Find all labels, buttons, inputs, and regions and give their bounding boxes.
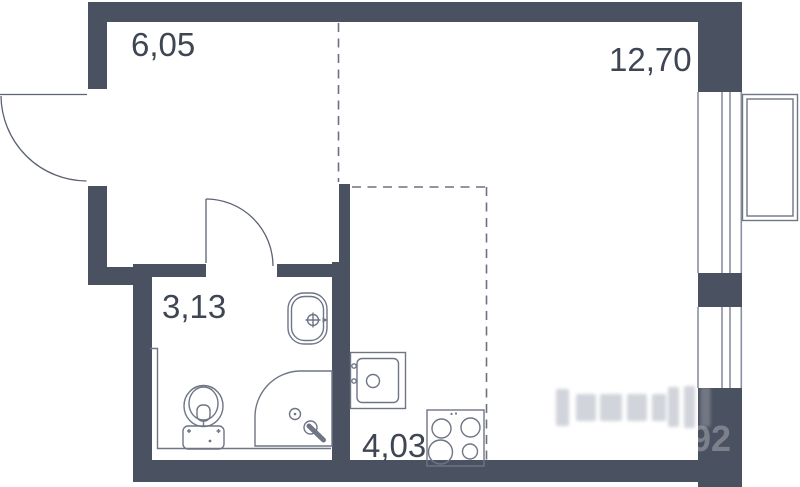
kitchen-sink-icon (351, 353, 406, 409)
window-living-upper-icon (698, 92, 741, 273)
balcony-outline (743, 95, 798, 221)
watermark: 92 (556, 386, 731, 459)
toilet-icon (183, 386, 224, 450)
wall-right-mid-pier (698, 273, 742, 307)
wall-bathroom-top-left (133, 264, 206, 277)
wall-kitchen-stub (339, 184, 350, 264)
bathroom-inner-wall-line (150, 349, 331, 449)
zone-boundaries (339, 23, 487, 460)
area-label-kitchen: 4,03 (362, 427, 426, 464)
bathroom-door-arc (206, 199, 273, 266)
wall-left-lower (133, 285, 152, 481)
window-living-lower-icon (698, 307, 741, 388)
floorplan-svg: 6,05 12,70 3,13 4,03 92 (0, 0, 800, 487)
stove-4-burner-icon (427, 410, 484, 466)
area-label-living-room: 12,70 (609, 41, 692, 78)
floorplan-canvas: 6,05 12,70 3,13 4,03 92 (0, 0, 800, 487)
wall-bathroom-right (332, 262, 350, 462)
area-label-hallway: 6,05 (131, 26, 195, 63)
corner-shower-icon (255, 371, 332, 446)
area-label-bathroom: 3,13 (162, 288, 226, 325)
washbasin-icon (288, 293, 328, 344)
wall-top (88, 2, 742, 22)
bathroom-door (206, 199, 273, 266)
watermark-illegible-marks (556, 386, 695, 428)
entrance-door (0, 95, 87, 182)
wall-left-upper (88, 2, 107, 89)
watermark-digits: 92 (691, 418, 731, 459)
entrance-door-arc (1, 96, 87, 181)
wall-top-right-corner (698, 22, 742, 92)
